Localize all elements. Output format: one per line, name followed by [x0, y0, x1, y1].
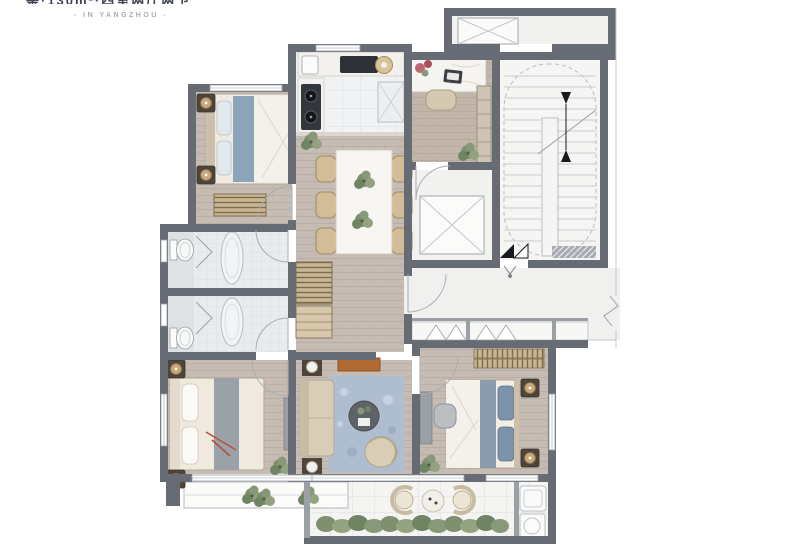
window: [316, 45, 360, 51]
hatched-mat: [552, 246, 596, 258]
toilet: [170, 327, 194, 349]
pillow: [182, 384, 198, 421]
striped-bench: [214, 194, 266, 216]
dining-chair: [316, 192, 336, 218]
nightstand-lamp: [167, 360, 185, 378]
chair: [434, 404, 456, 428]
oval-tub: [221, 298, 243, 346]
duvet: [254, 96, 292, 182]
stair-stringer: [542, 118, 558, 256]
window: [161, 394, 167, 446]
oval-tub: [221, 232, 243, 284]
floor-plan-canvas: [0, 0, 800, 553]
pillow: [498, 427, 514, 461]
wardrobe: [474, 349, 544, 358]
partition: [514, 482, 519, 540]
round-table: [422, 490, 444, 512]
balcony-end-wall: [304, 482, 310, 538]
dining-chair: [316, 156, 336, 182]
wall-cabinet: [302, 56, 318, 74]
window: [549, 394, 555, 450]
window: [210, 85, 282, 91]
nightstand-lamp: [521, 449, 539, 467]
sink: [340, 56, 378, 73]
blue-blanket: [233, 96, 254, 182]
pillow: [182, 427, 198, 464]
window: [161, 304, 167, 326]
window: [161, 240, 167, 262]
bed-headboard: [514, 380, 519, 468]
nightstand-lamp: [521, 379, 539, 397]
desk: [420, 392, 432, 444]
elevator: [420, 196, 484, 254]
bed-headboard: [170, 378, 180, 470]
hallway-sideboard: [296, 262, 332, 338]
service-shaft: [458, 18, 518, 44]
bed-runner: [480, 380, 496, 468]
pillow: [498, 386, 514, 420]
desk-chair: [426, 90, 456, 110]
sliding-door: [312, 475, 464, 481]
dining-chair: [316, 228, 336, 254]
dining-table: [336, 150, 392, 254]
window: [486, 475, 538, 481]
nightstand-lamp: [197, 166, 215, 184]
pillow: [217, 141, 231, 175]
bookshelf: [477, 86, 491, 166]
pillow: [217, 101, 231, 135]
nightstand-lamp: [197, 94, 215, 112]
bed-runner: [214, 378, 239, 470]
toilet: [170, 239, 194, 261]
coffee-table: [349, 401, 379, 431]
